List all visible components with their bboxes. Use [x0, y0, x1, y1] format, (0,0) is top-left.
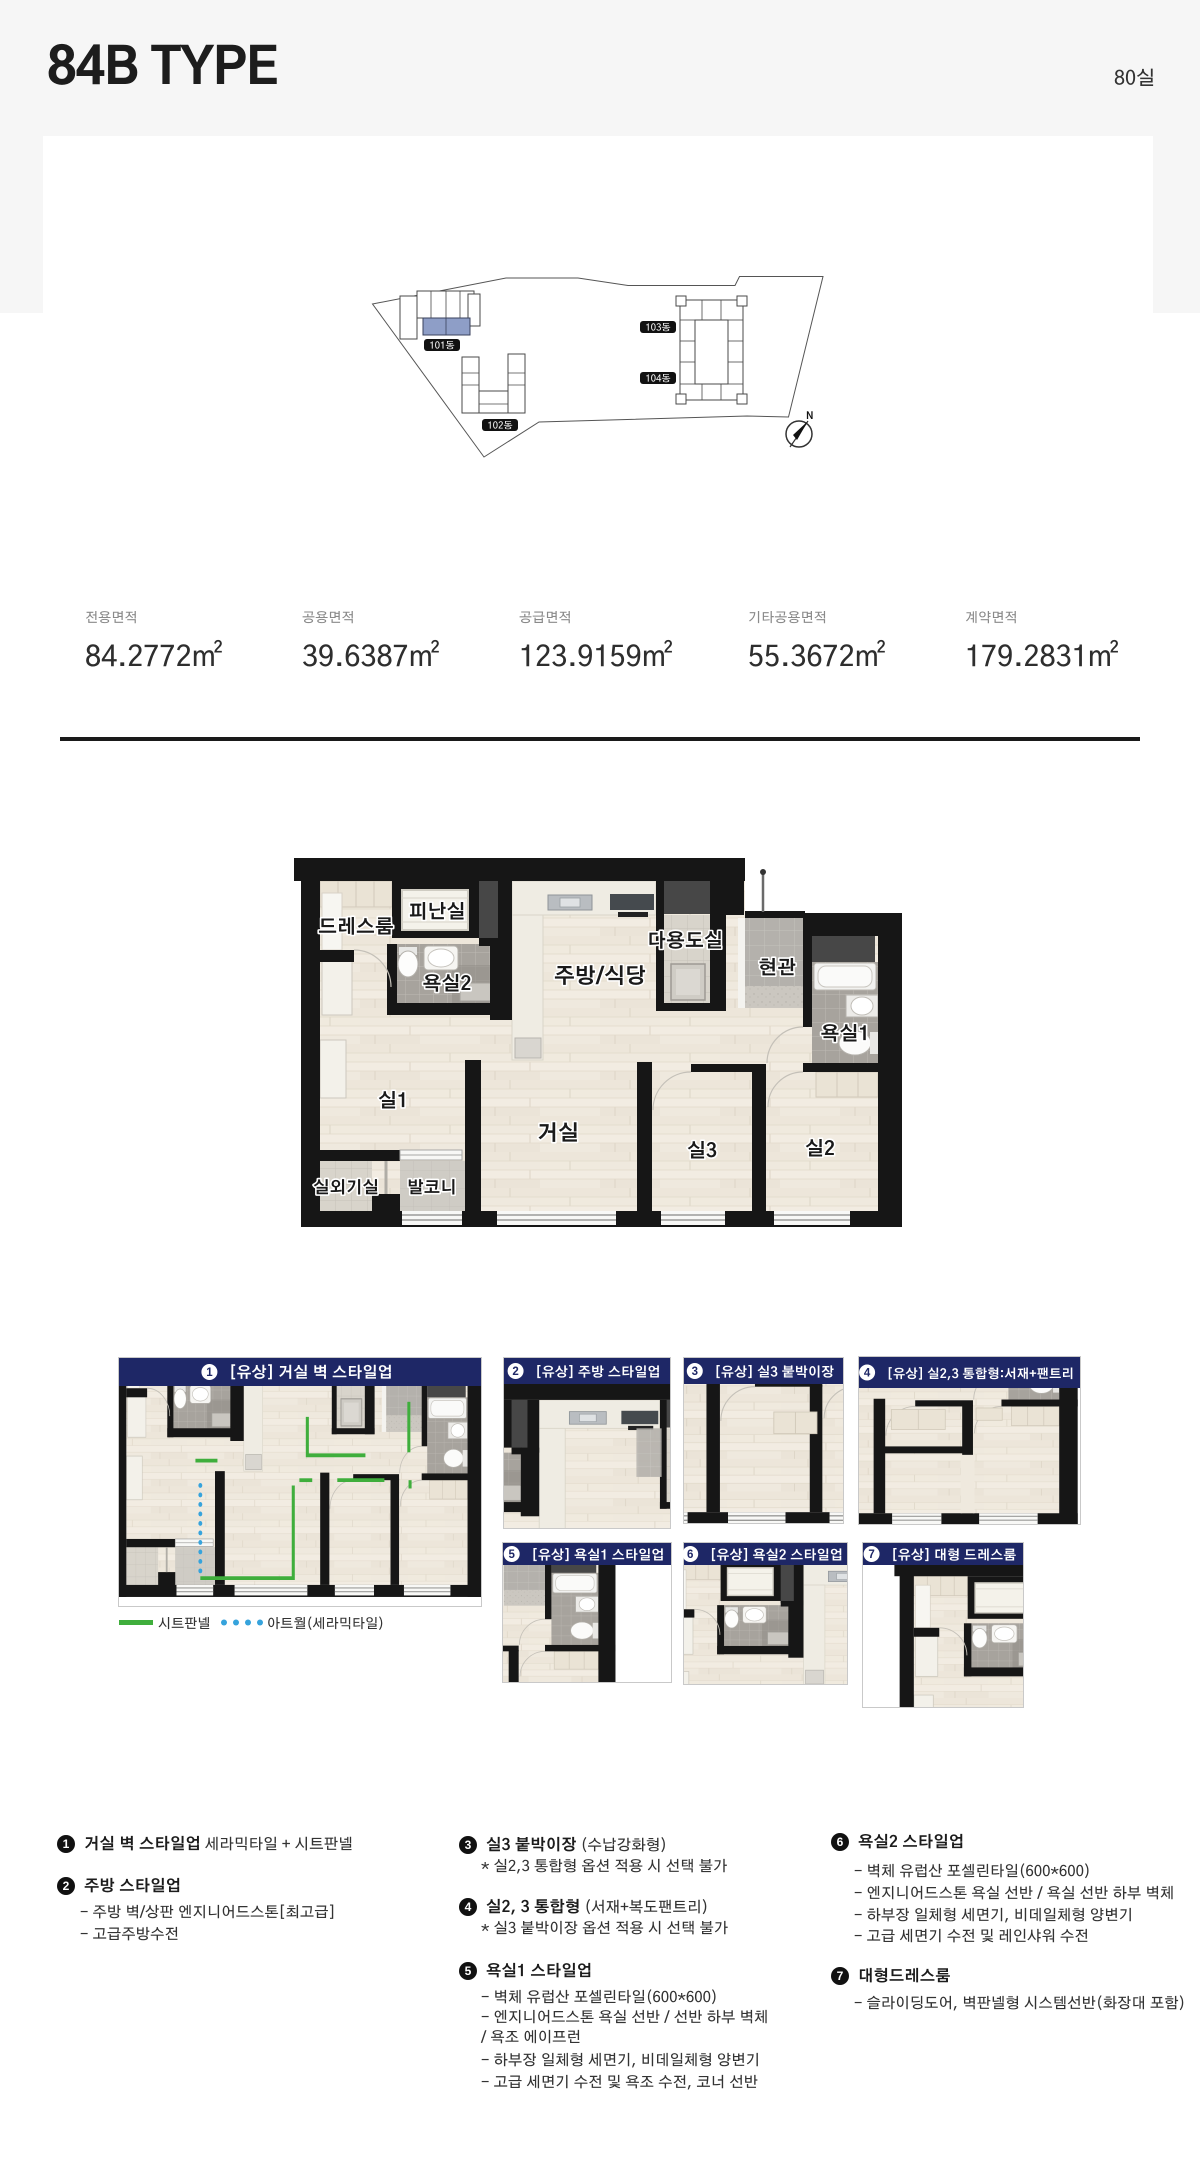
svg-text:1: 1	[206, 1367, 213, 1379]
svg-text:4: 4	[864, 1368, 871, 1380]
svg-text:6: 6	[687, 1549, 693, 1561]
svg-text:7: 7	[837, 1969, 844, 1983]
svg-text:3: 3	[465, 1838, 472, 1852]
svg-text:7: 7	[868, 1549, 874, 1561]
svg-text:3: 3	[692, 1366, 698, 1378]
svg-text:6: 6	[837, 1835, 844, 1849]
svg-text:2: 2	[63, 1879, 70, 1893]
svg-text:5: 5	[465, 1964, 472, 1978]
svg-text:1: 1	[63, 1837, 70, 1851]
svg-text:5: 5	[509, 1549, 516, 1561]
svg-text:2: 2	[512, 1366, 518, 1378]
svg-text:4: 4	[465, 1900, 472, 1914]
